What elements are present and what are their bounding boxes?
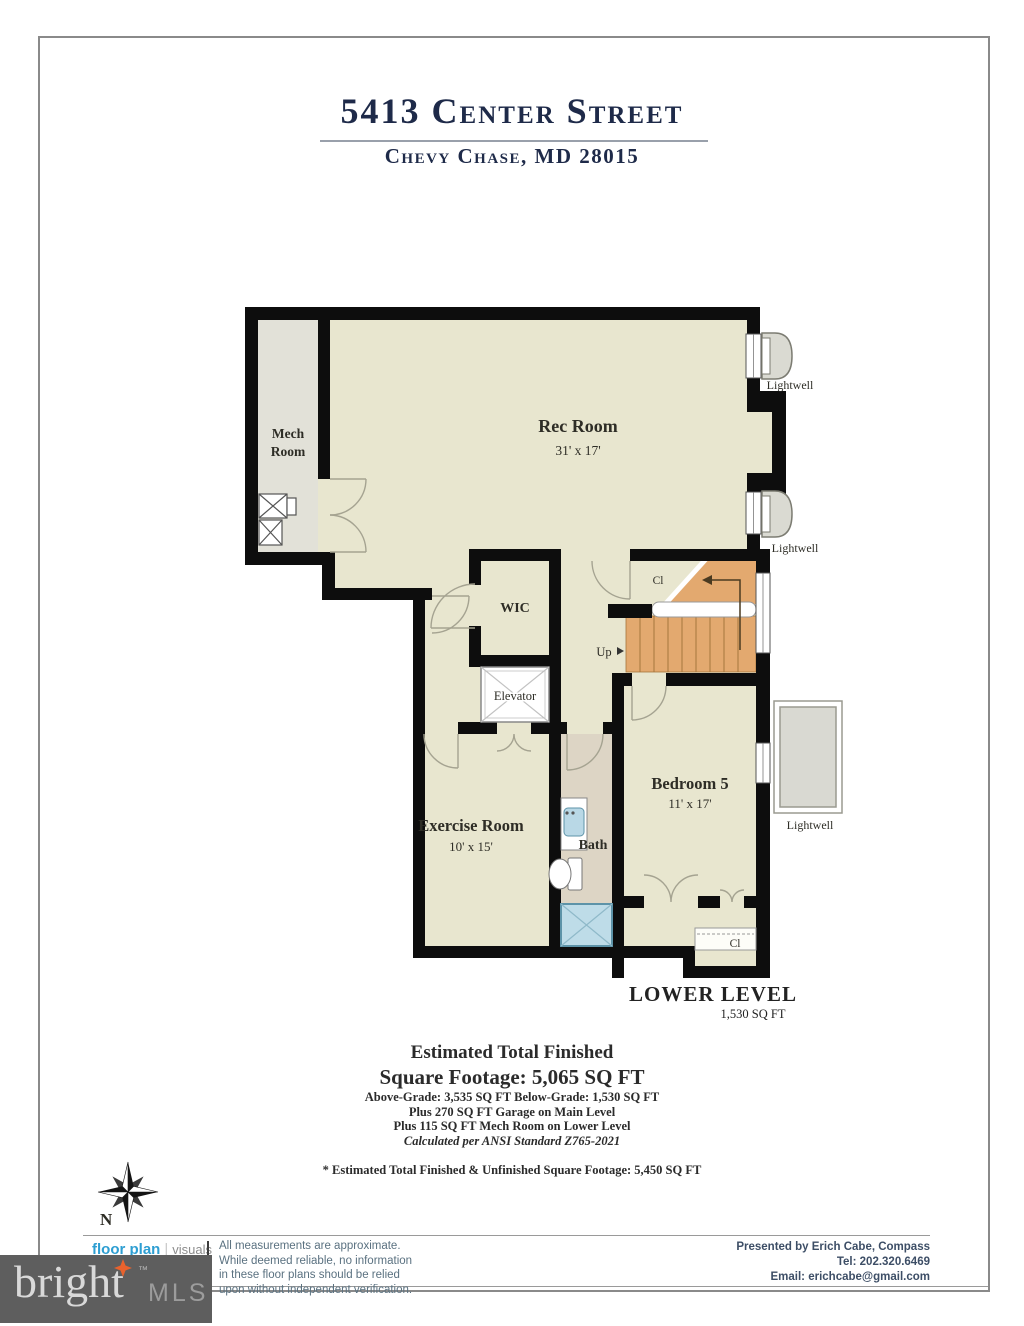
title-underline (320, 140, 708, 142)
summary-line-4: Plus 270 SQ FT Garage on Main Level (212, 1105, 812, 1120)
summary-line-1: Estimated Total Finished (212, 1042, 812, 1064)
watermark-mls: MLS (148, 1279, 208, 1308)
up-label: Up (596, 645, 611, 659)
bath-label: Bath (579, 838, 608, 853)
disclaimer-line: While deemed reliable, no information (219, 1254, 412, 1269)
toilet-icon (549, 859, 571, 889)
level-name: LOWER LEVEL (613, 982, 813, 1007)
lightwell-bay-3 (780, 707, 836, 807)
lightwell-3-label: Lightwell (787, 818, 834, 832)
page-title: 5413 Center Street (0, 90, 1024, 132)
rec-room-dims: 31' x 17' (555, 443, 600, 458)
exercise-room-label: Exercise Room (418, 816, 524, 835)
level-sqft: 1,530 SQ FT (653, 1007, 853, 1022)
mech-room-label: Mech (272, 426, 305, 441)
svg-text:Room: Room (271, 444, 306, 459)
lightwell-2-label: Lightwell (772, 541, 819, 555)
wic-label: WIC (500, 601, 530, 616)
closet-bedroom-label: Cl (730, 938, 741, 950)
square-footage-summary: Estimated Total Finished Square Footage:… (212, 1042, 812, 1149)
footer-top-rule (83, 1235, 930, 1236)
watermark-star-icon (114, 1259, 132, 1277)
disclaimer-line: upon without independent verification. (219, 1283, 412, 1298)
lightwell-1-label: Lightwell (767, 378, 814, 392)
compass-rose-icon: N (98, 1162, 158, 1229)
summary-line-2: Square Footage: 5,065 SQ FT (212, 1064, 812, 1090)
watermark-brand: bright (14, 1255, 124, 1308)
disclaimer-line: All measurements are approximate. (219, 1239, 412, 1254)
agent-email: Email: erichcabe@gmail.com (736, 1270, 930, 1285)
bedroom-label: Bedroom 5 (651, 774, 728, 793)
compass-north-label: N (100, 1210, 113, 1229)
closet-stair-label: Cl (653, 575, 664, 587)
bedroom-closet (695, 928, 756, 950)
elevator-label: Elevator (494, 689, 537, 703)
page-subtitle: Chevy Chase, MD 28015 (0, 144, 1024, 169)
exercise-room-dims: 10' x 15' (449, 839, 493, 854)
bedroom-dims: 11' x 17' (668, 796, 711, 811)
summary-footnote: * Estimated Total Finished & Unfinished … (212, 1163, 812, 1178)
rec-room-label: Rec Room (538, 416, 617, 436)
agent-phone: Tel: 202.320.6469 (736, 1255, 930, 1270)
disclaimer-text: All measurements are approximate. While … (219, 1239, 412, 1297)
bright-mls-watermark: bright ™ MLS (0, 1255, 212, 1323)
summary-line-3: Above-Grade: 3,535 SQ FT Below-Grade: 1,… (212, 1090, 812, 1105)
watermark-tm: ™ (138, 1265, 148, 1276)
summary-line-6: Calculated per ANSI Standard Z765-2021 (212, 1134, 812, 1149)
summary-line-5: Plus 115 SQ FT Mech Room on Lower Level (212, 1119, 812, 1134)
disclaimer-line: in these floor plans should be relied (219, 1268, 412, 1283)
presented-by-line: Presented by Erich Cabe, Compass (736, 1240, 930, 1255)
floor-plan-page: Mech Room Rec Room 31' x 17' WIC Elevato… (0, 0, 1024, 1326)
presented-by-block: Presented by Erich Cabe, Compass Tel: 20… (736, 1240, 930, 1285)
